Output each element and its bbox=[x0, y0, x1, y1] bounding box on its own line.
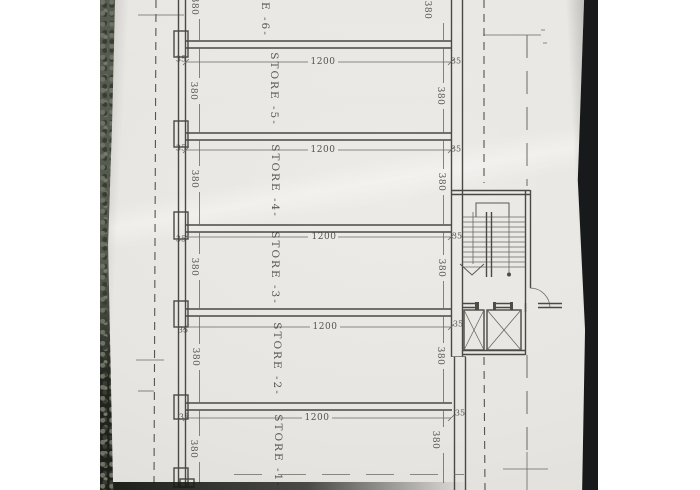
staircase bbox=[451, 190, 562, 312]
dimension-label-depth: 380 bbox=[188, 82, 198, 101]
room-dividers bbox=[186, 41, 452, 410]
paper-edge-shadow bbox=[109, 482, 469, 490]
dimension-label-width: 1200 bbox=[312, 232, 337, 242]
dimension-label-depth: 380 bbox=[422, 1, 432, 20]
wall-thickness-label: 35 bbox=[178, 326, 188, 335]
room-label-store-1: STORE -1- bbox=[272, 414, 284, 488]
dimension-label-width: 1200 bbox=[311, 145, 336, 155]
room-label-store-2: STORE -2- bbox=[271, 322, 283, 396]
room-label-store-6: STORE -6- bbox=[259, 0, 271, 37]
wall-thickness-label: 35 bbox=[176, 55, 186, 64]
wall-thickness-label: 35 bbox=[453, 320, 463, 329]
right-reference-lines bbox=[483, 0, 548, 490]
wall-thickness-label: 35 bbox=[176, 235, 186, 244]
floorplan-photo: STORE -6- STORE -5- STORE -4- STORE -3- … bbox=[0, 0, 700, 490]
room-label-store-4: STORE -4- bbox=[269, 144, 281, 218]
dimension-label-depth: 380 bbox=[430, 431, 440, 450]
dimension-label-depth: 380 bbox=[189, 258, 199, 277]
wall-thickness-label: 35 bbox=[452, 232, 462, 241]
dimension-label-depth: 380 bbox=[436, 173, 446, 192]
wall-thickness-label: 35 bbox=[455, 409, 465, 418]
elevator-shaft bbox=[463, 302, 526, 355]
room-label-store-5: STORE -5- bbox=[268, 52, 280, 126]
drawing-paper: STORE -6- STORE -5- STORE -4- STORE -3- … bbox=[104, 0, 586, 490]
dimension-label-width: 1200 bbox=[313, 322, 338, 332]
room-label-store-3: STORE -3- bbox=[269, 231, 281, 305]
wall-thickness-label: 35 bbox=[451, 57, 461, 66]
dimension-label-depth: 380 bbox=[189, 170, 199, 189]
floor-plan-drawing bbox=[104, 0, 586, 490]
dimension-label-depth: 380 bbox=[190, 348, 200, 367]
dimension-label-depth: 380 bbox=[189, 0, 199, 15]
dimension-label-width: 1200 bbox=[305, 413, 330, 423]
wall-thickness-label: 35 bbox=[179, 413, 189, 422]
wall-thickness-label: 35 bbox=[451, 145, 461, 154]
dimension-label-depth: 380 bbox=[435, 87, 445, 106]
dimension-label-depth: 380 bbox=[188, 440, 198, 459]
wall-thickness-label: 35 bbox=[176, 144, 186, 153]
dimension-label-depth: 380 bbox=[436, 259, 446, 278]
dimension-label-depth: 380 bbox=[435, 347, 445, 366]
dimension-label-width: 1200 bbox=[311, 57, 336, 67]
